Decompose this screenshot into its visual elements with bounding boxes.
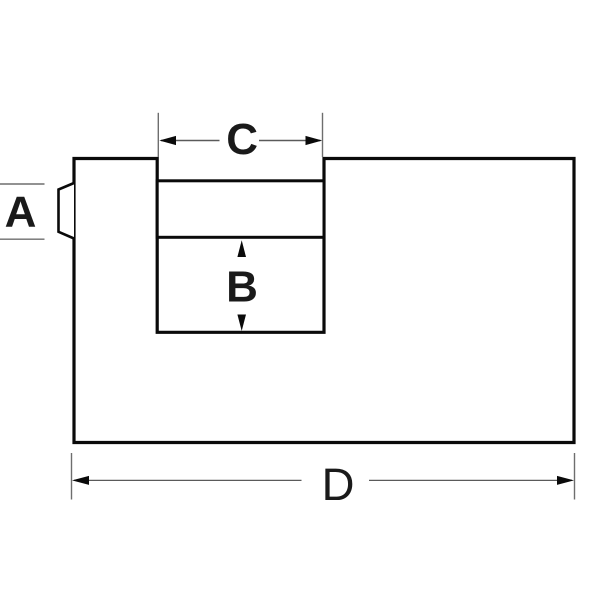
svg-text:D: D — [322, 459, 355, 510]
svg-text:B: B — [226, 263, 258, 312]
svg-text:C: C — [226, 115, 258, 164]
svg-text:A: A — [5, 188, 37, 237]
